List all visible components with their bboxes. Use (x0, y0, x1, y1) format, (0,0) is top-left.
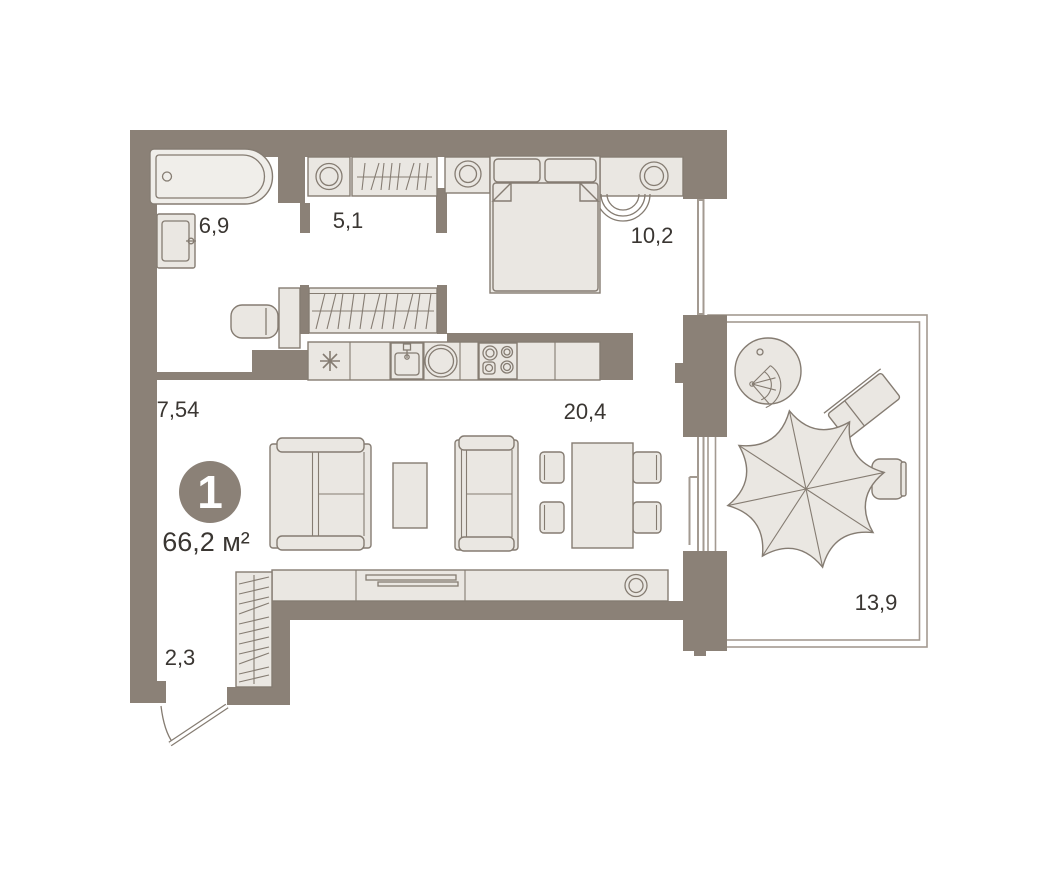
wall-kitchen-back-strip (447, 333, 600, 342)
desk-chair-icon (231, 305, 278, 338)
total-area-label: 66,2 м² (162, 527, 250, 557)
armchair-icon (596, 194, 650, 221)
entry: 2,3 (161, 572, 272, 744)
wall-left-jut (157, 681, 166, 703)
wall-kitchen-right-block (600, 333, 633, 380)
hallway-area-label: 5,1 (333, 208, 364, 233)
kitchen: 7,54 (157, 288, 600, 422)
hallway-wardrobe-icon (352, 157, 437, 196)
wall-wardrobe-left-stub (300, 285, 309, 334)
terrace-door-window (690, 437, 704, 551)
bedroom-window (697, 199, 705, 315)
tv-sideboard-icon (272, 570, 668, 601)
wall-entry-bottom (227, 687, 290, 705)
entry-wardrobe-icon (236, 572, 272, 687)
floor-plan-svg: 13,9 (0, 0, 1058, 880)
coffee-table-icon (393, 463, 427, 528)
fridge-star-icon (320, 351, 340, 371)
dining-chair-icon (540, 502, 564, 533)
wash-basin-icon (157, 214, 196, 268)
sofa-icon (270, 438, 371, 550)
badge-room-count: 1 (197, 466, 223, 518)
wall-terrace-tab (675, 363, 683, 383)
bedroom: 10,2 (445, 156, 683, 293)
wall-left (130, 157, 157, 703)
wall-bath-divider (278, 157, 305, 203)
terrace-area-label: 13,9 (855, 590, 898, 615)
living-room: 20,4 (270, 399, 668, 601)
stove-icon (479, 343, 517, 379)
entry-door-swing-arc (161, 706, 173, 743)
washing-machine-icon (308, 157, 350, 196)
bedroom-area-label: 10,2 (631, 223, 674, 248)
double-bed-icon (490, 156, 600, 293)
loveseat-icon (455, 436, 518, 551)
kitchen-sink-icon (391, 343, 423, 379)
wall-terrace-upper-block (683, 315, 727, 437)
living-area-label: 20,4 (564, 399, 607, 424)
dining-chair-icon (540, 452, 564, 483)
dining-table-icon (572, 443, 633, 548)
bathroom: 6,9 (150, 149, 273, 268)
wall-wardrobe-right-stub (437, 285, 447, 334)
corridor-area-label: 7,54 (157, 397, 200, 422)
kitchen-counter (308, 342, 600, 380)
wall-bath-stub (300, 203, 310, 233)
dining-set (540, 443, 661, 548)
hallway: 5,1 (308, 157, 437, 233)
entry-door-icon (161, 706, 227, 744)
entry-area-label: 2,3 (165, 645, 196, 670)
bathtub-icon (150, 149, 273, 204)
pillow-icon (545, 159, 596, 182)
bedroom-cabinet-icon (600, 157, 683, 196)
floor-plan: 13,9 (0, 0, 1058, 880)
wall-living-bottom (272, 601, 683, 620)
unit-badge: 1 66,2 м² (162, 461, 250, 557)
wall-terrace-nub (694, 651, 706, 656)
pillow-icon (494, 159, 540, 182)
wall-terrace-lower-block (683, 551, 727, 651)
wall-top-right-block (683, 130, 727, 199)
bathroom-area-label: 6,9 (199, 213, 230, 238)
kitchen-wardrobe-icon (309, 288, 437, 333)
terrace: 13,9 (708, 315, 927, 647)
wall-corridor-thin (157, 372, 252, 380)
desk-icon (279, 288, 300, 348)
wall-corridor-block (252, 350, 309, 380)
nightstand-left-icon (445, 157, 490, 193)
